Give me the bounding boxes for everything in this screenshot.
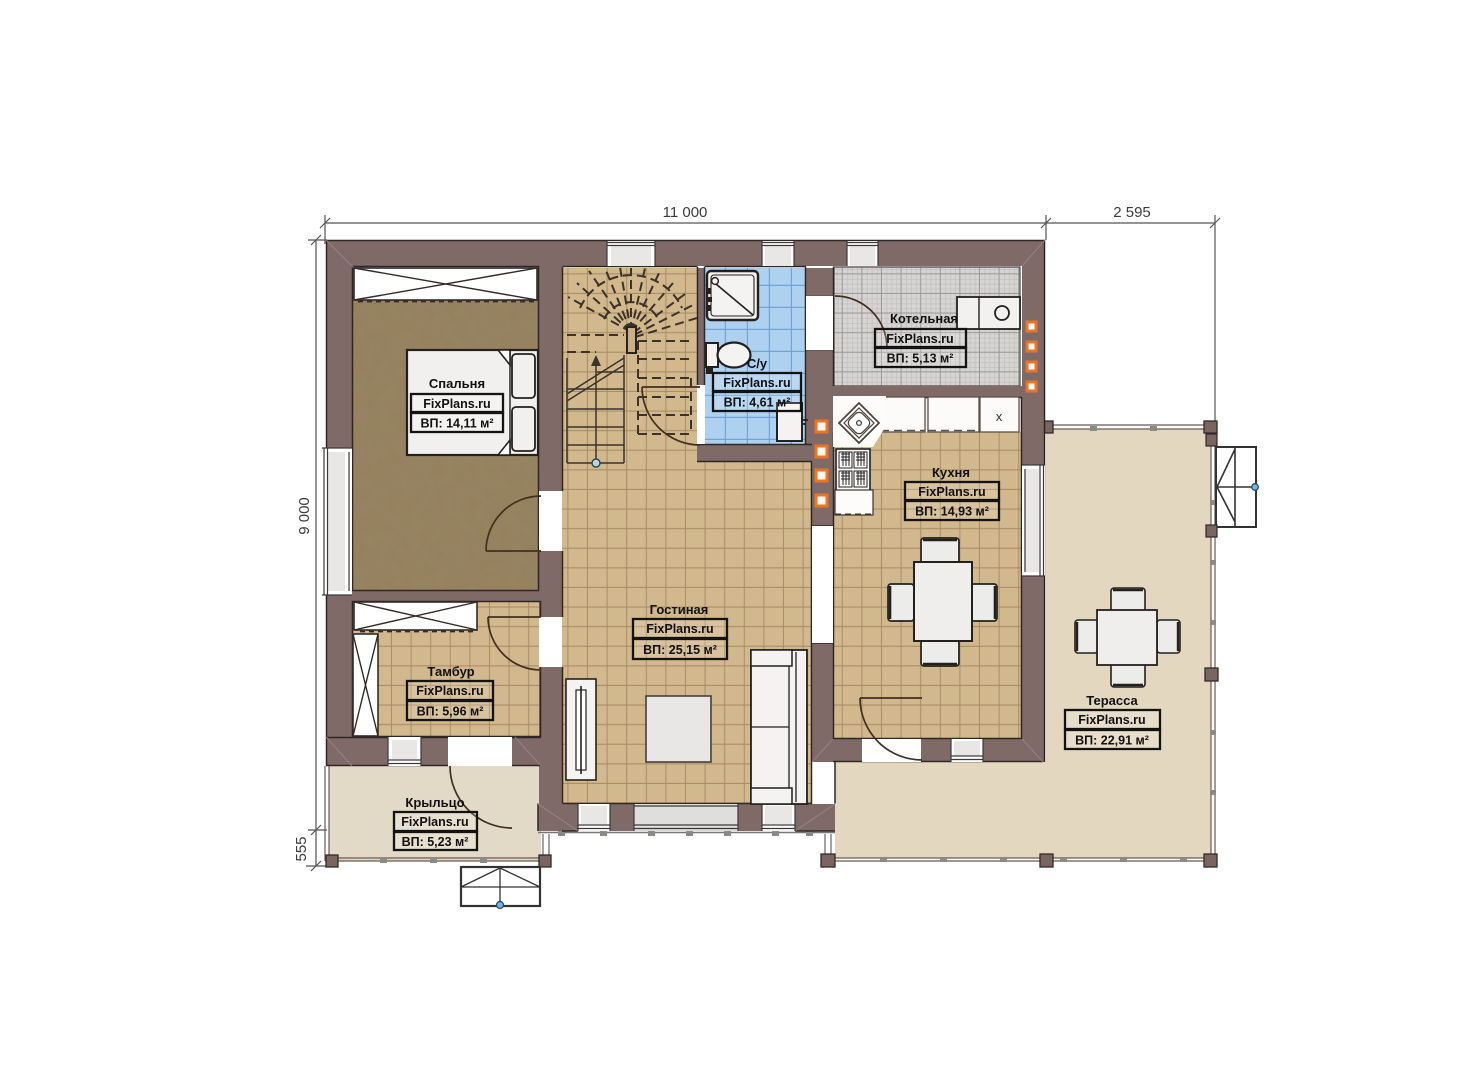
- svg-text:9 000: 9 000: [296, 497, 313, 535]
- svg-text:ВП: 5,96 м²: ВП: 5,96 м²: [417, 705, 484, 719]
- svg-text:ВП: 5,13 м²: ВП: 5,13 м²: [887, 352, 954, 366]
- svg-text:ВП: 5,23 м²: ВП: 5,23 м²: [402, 835, 469, 849]
- svg-text:FixPlans.ru: FixPlans.ru: [416, 684, 483, 698]
- svg-text:ВП: 14,11 м²: ВП: 14,11 м²: [420, 417, 493, 431]
- svg-text:FixPlans.ru: FixPlans.ru: [423, 397, 490, 411]
- svg-text:Гостиная: Гостиная: [650, 602, 709, 617]
- svg-text:Терасса: Терасса: [1086, 693, 1138, 708]
- svg-text:FixPlans.ru: FixPlans.ru: [918, 485, 985, 499]
- svg-text:ВП: 4,61 м²: ВП: 4,61 м²: [724, 396, 791, 410]
- svg-text:555: 555: [293, 836, 310, 861]
- svg-text:С/у: С/у: [747, 356, 768, 371]
- svg-text:FixPlans.ru: FixPlans.ru: [401, 815, 468, 829]
- svg-text:ВП: 14,93 м²: ВП: 14,93 м²: [915, 505, 989, 519]
- svg-text:Спальня: Спальня: [429, 376, 485, 391]
- svg-text:Кухня: Кухня: [932, 465, 970, 480]
- svg-text:FixPlans.ru: FixPlans.ru: [1078, 713, 1145, 727]
- svg-text:FixPlans.ru: FixPlans.ru: [886, 332, 953, 346]
- svg-text:Крыльцо: Крыльцо: [405, 795, 464, 810]
- svg-text:x: x: [996, 409, 1003, 424]
- svg-text:ВП: 22,91 м²: ВП: 22,91 м²: [1075, 734, 1149, 748]
- svg-text:Тамбур: Тамбур: [427, 664, 474, 679]
- svg-text:Котельная: Котельная: [890, 311, 958, 326]
- svg-text:ВП: 25,15 м²: ВП: 25,15 м²: [643, 643, 717, 657]
- svg-text:FixPlans.ru: FixPlans.ru: [723, 376, 790, 390]
- svg-text:2 595: 2 595: [1113, 204, 1151, 221]
- svg-text:11 000: 11 000: [663, 204, 708, 221]
- svg-text:FixPlans.ru: FixPlans.ru: [646, 622, 713, 636]
